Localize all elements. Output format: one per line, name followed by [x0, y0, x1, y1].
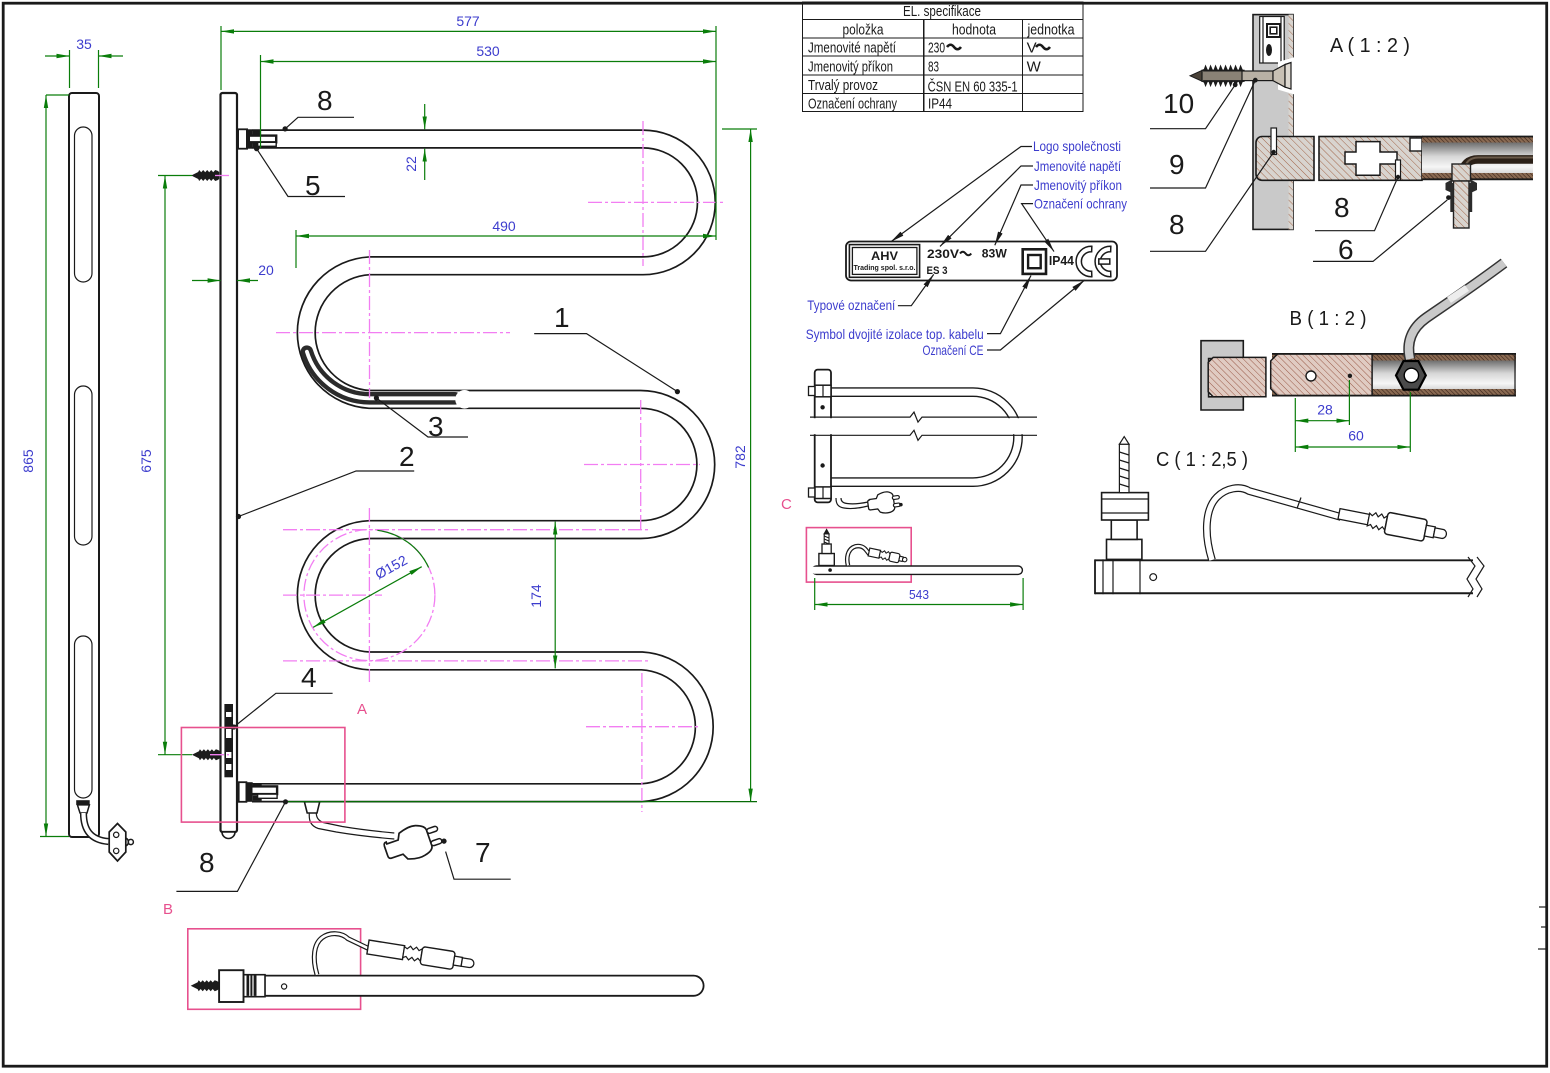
svg-text:7: 7 [475, 837, 491, 868]
svg-text:Logo společnosti: Logo společnosti [1033, 138, 1121, 154]
svg-text:C: C [781, 496, 792, 513]
svg-text:2: 2 [399, 441, 415, 472]
svg-text:Označení CE: Označení CE [923, 342, 984, 358]
svg-text:865: 865 [20, 449, 36, 473]
svg-text:577: 577 [456, 13, 480, 29]
svg-text:Trading spol. s.r.o.: Trading spol. s.r.o. [854, 263, 916, 272]
svg-text:83W: 83W [982, 247, 1008, 261]
svg-text:Symbol dvojité izolace top. ka: Symbol dvojité izolace top. kabelu [806, 326, 984, 342]
svg-text:Jmenovitý příkon: Jmenovitý příkon [1034, 177, 1122, 193]
svg-text:60: 60 [1348, 428, 1364, 444]
svg-text:1: 1 [554, 302, 570, 333]
svg-text:6: 6 [1338, 234, 1354, 265]
svg-text:20: 20 [258, 262, 274, 278]
svg-text:hodnota: hodnota [952, 22, 997, 39]
svg-text:8: 8 [199, 847, 215, 878]
svg-text:543: 543 [909, 587, 929, 602]
svg-text:Jmenovité napětí: Jmenovité napětí [808, 40, 897, 57]
svg-text:10: 10 [1163, 88, 1194, 119]
svg-text:C ( 1 : 2,5 ): C ( 1 : 2,5 ) [1156, 449, 1248, 471]
svg-text:B: B [163, 901, 173, 918]
svg-text:AHV: AHV [871, 251, 898, 263]
svg-text:8: 8 [1169, 209, 1185, 240]
svg-text:ES 3: ES 3 [927, 265, 948, 277]
svg-text:B ( 1 : 2 ): B ( 1 : 2 ) [1290, 308, 1367, 330]
svg-text:EL. specifikace: EL. specifikace [903, 3, 981, 20]
svg-text:Označení ochrany: Označení ochrany [808, 96, 897, 113]
svg-text:A ( 1 : 2 ): A ( 1 : 2 ) [1330, 35, 1410, 57]
svg-text:W: W [1027, 59, 1042, 76]
svg-text:9: 9 [1169, 149, 1185, 180]
svg-text:Trvalý provoz: Trvalý provoz [808, 77, 878, 94]
svg-text:28: 28 [1317, 402, 1333, 418]
svg-text:4: 4 [301, 662, 317, 693]
svg-text:490: 490 [492, 218, 516, 234]
svg-text:IP44: IP44 [928, 96, 952, 113]
svg-text:675: 675 [138, 449, 154, 473]
svg-text:8: 8 [317, 85, 333, 116]
svg-text:A: A [357, 701, 367, 718]
svg-text:230: 230 [928, 40, 945, 57]
svg-text:V: V [1027, 40, 1037, 57]
svg-text:22: 22 [403, 156, 419, 172]
svg-text:174: 174 [528, 584, 544, 608]
svg-text:83: 83 [928, 59, 939, 76]
svg-text:jednotka: jednotka [1027, 22, 1075, 39]
svg-text:782: 782 [732, 445, 748, 469]
svg-text:Typové označení: Typové označení [807, 297, 895, 313]
svg-text:ČSN EN 60 335-1: ČSN EN 60 335-1 [928, 79, 1018, 96]
svg-text:230V: 230V [927, 247, 959, 261]
svg-text:35: 35 [76, 36, 92, 52]
svg-text:Jmenovité napětí: Jmenovité napětí [1034, 158, 1121, 174]
svg-text:Jmenovitý příkon: Jmenovitý příkon [808, 59, 893, 76]
svg-text:položka: položka [843, 22, 885, 39]
svg-text:8: 8 [1334, 192, 1350, 223]
svg-text:530: 530 [476, 43, 500, 59]
svg-text:IP44: IP44 [1049, 254, 1074, 268]
svg-text:Označení ochrany: Označení ochrany [1034, 196, 1127, 212]
